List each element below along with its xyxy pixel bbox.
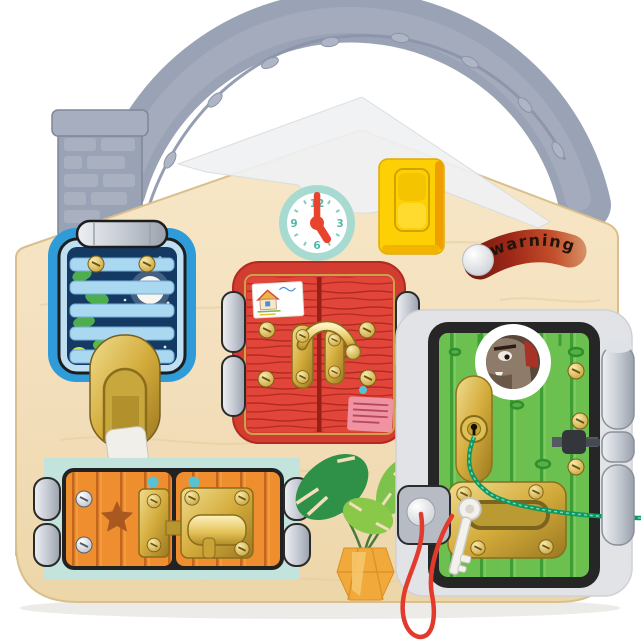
keyhole-plate [456, 376, 492, 482]
slider-ball [463, 245, 494, 276]
busy-board-photo: 12 3 6 9 warning [0, 0, 642, 642]
clock-number-6: 6 [313, 240, 320, 252]
red-double-doors [222, 262, 419, 443]
light-switch [379, 159, 444, 254]
clock-center [310, 216, 324, 230]
green-door-hinges [602, 341, 634, 545]
house-drawing-sticker [252, 282, 304, 319]
barn-doors [34, 458, 310, 580]
teaching-clock: 12 3 6 9 [279, 185, 355, 261]
clock-number-9: 9 [290, 218, 297, 230]
green-door-assembly [396, 310, 641, 596]
pink-note-sticker [347, 396, 394, 432]
chimney-cap [52, 110, 148, 136]
barrel-bolt [139, 488, 253, 558]
window-hinge [77, 221, 167, 247]
clock-number-3: 3 [336, 218, 343, 230]
